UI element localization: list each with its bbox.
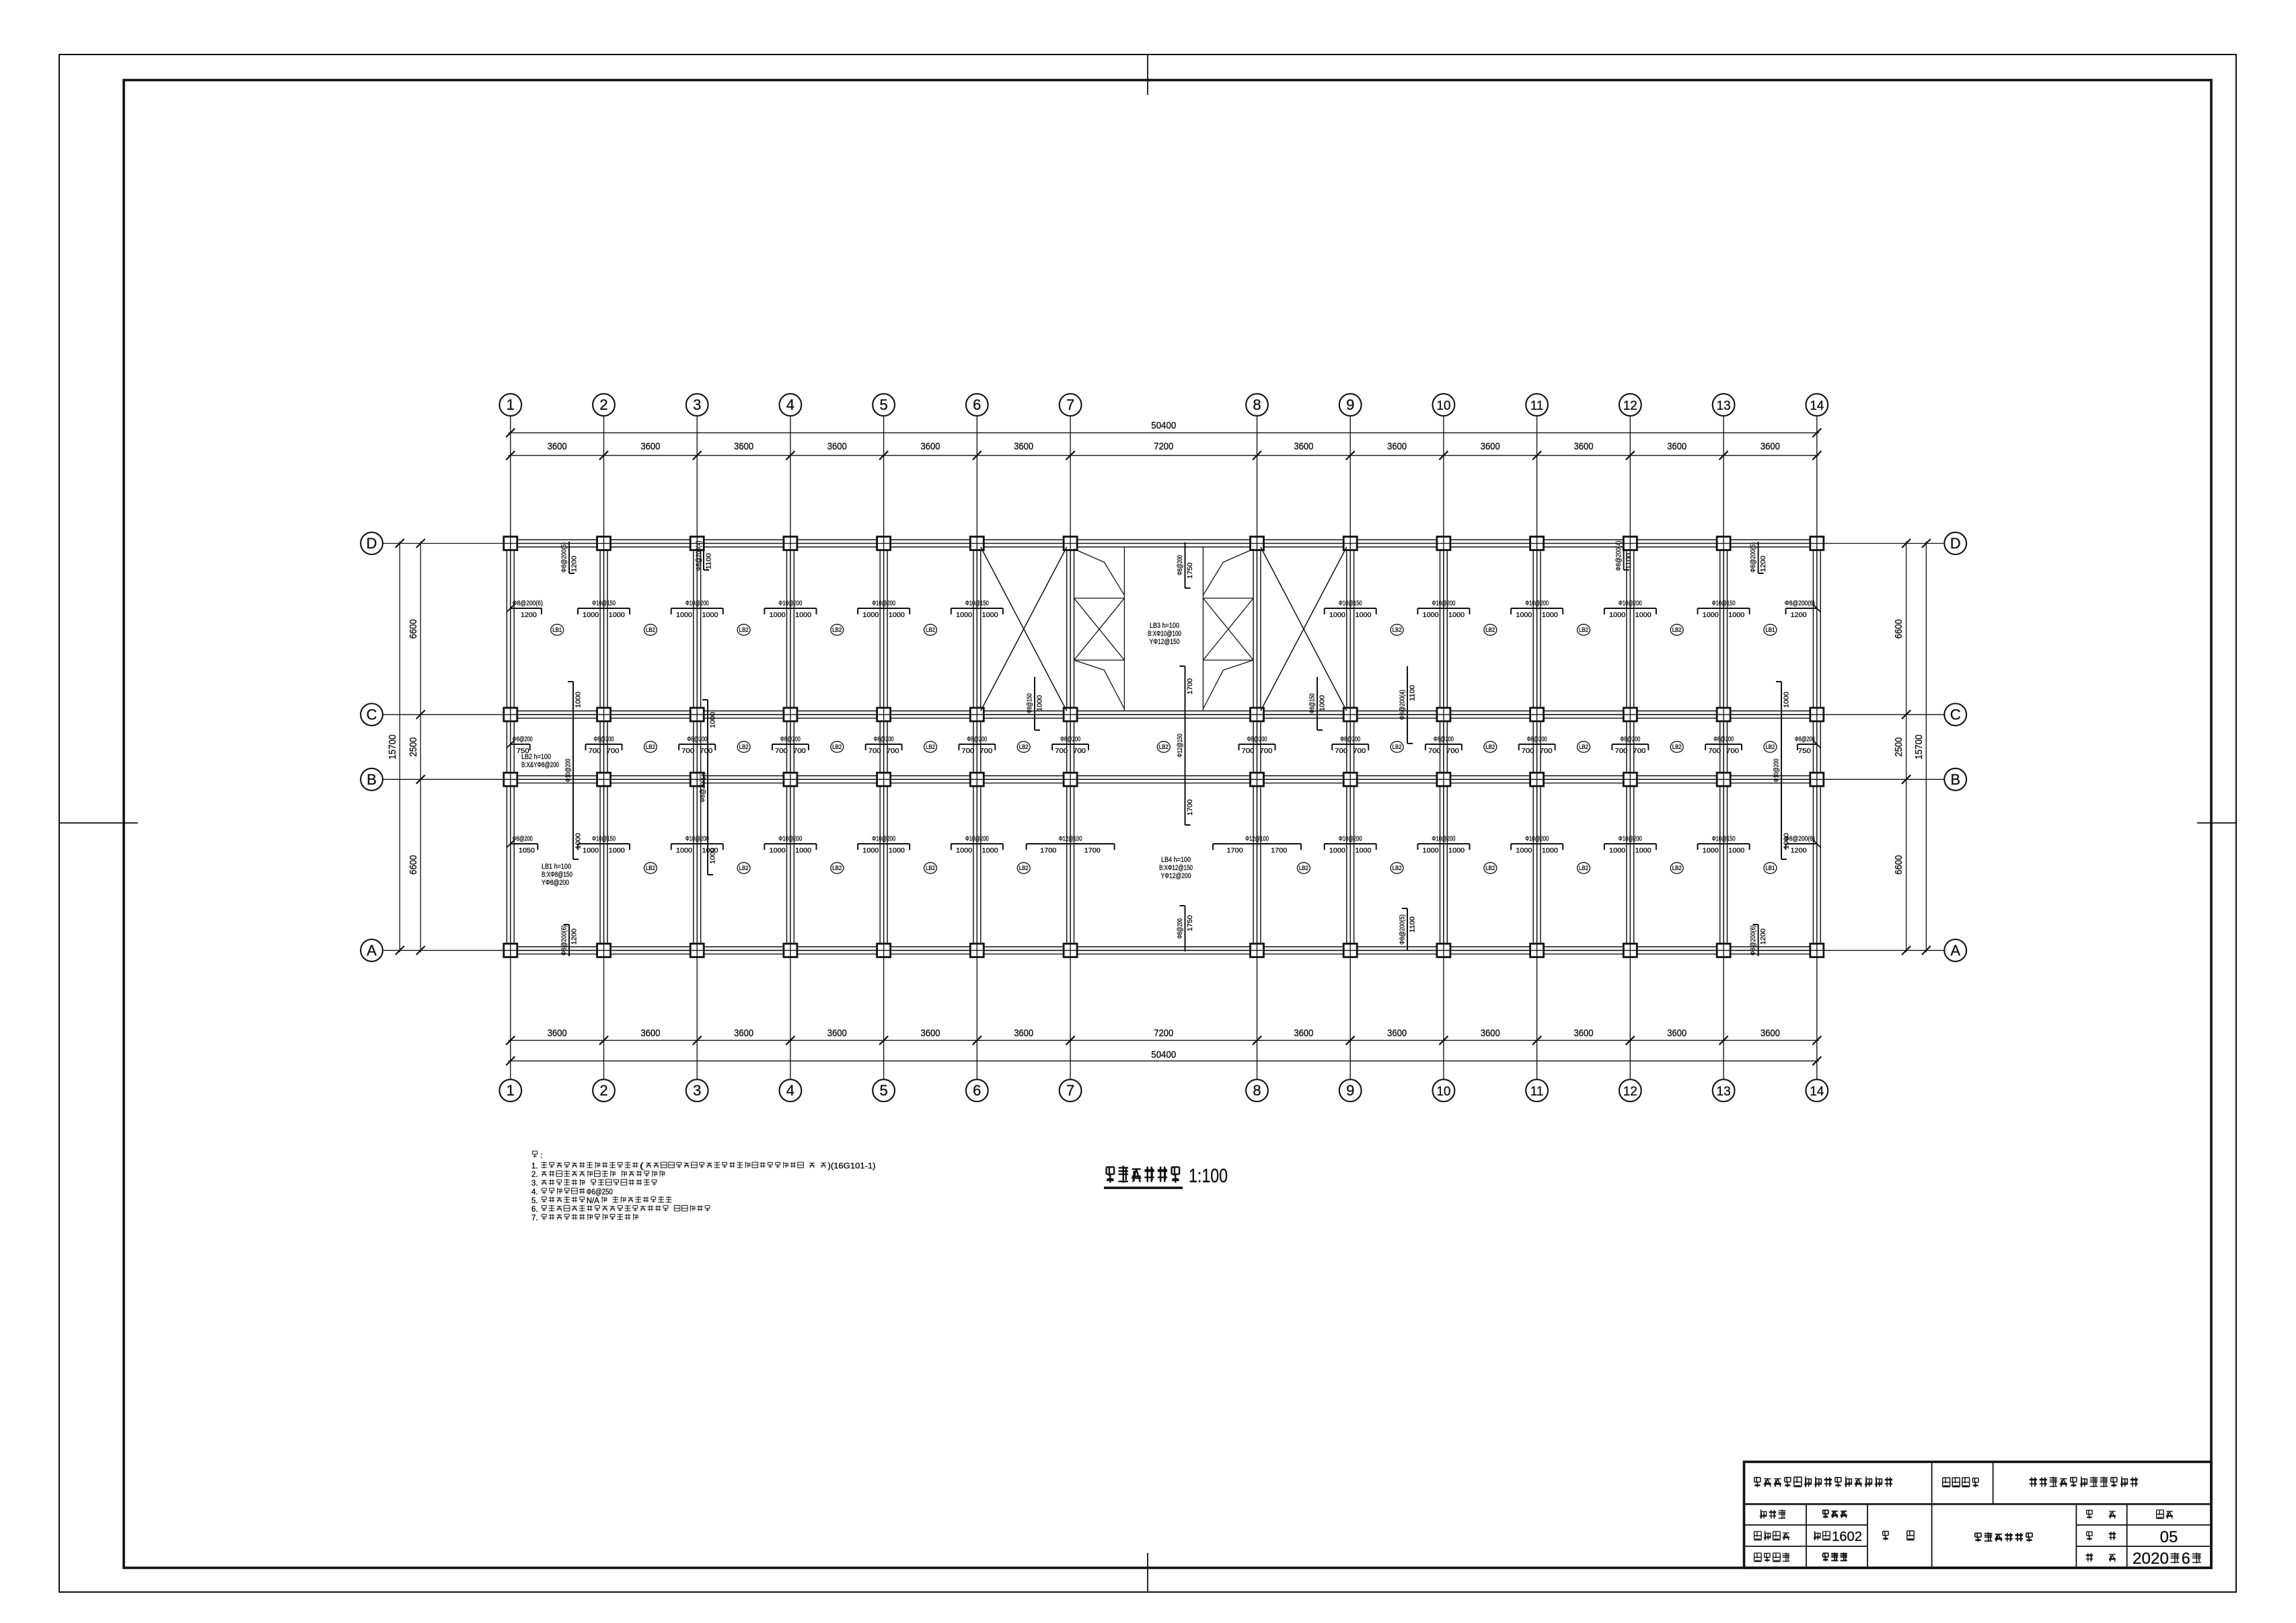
svg-text:3600: 3600 — [1387, 441, 1407, 452]
svg-text:1000: 1000 — [1423, 611, 1439, 619]
svg-text:LB2: LB2 — [1299, 865, 1308, 871]
svg-text:13: 13 — [1717, 399, 1731, 413]
svg-text:700: 700 — [868, 747, 881, 755]
svg-text:LB3 h=100: LB3 h=100 — [1150, 622, 1179, 630]
svg-text:1000: 1000 — [1356, 611, 1372, 619]
svg-text:1000: 1000 — [1783, 692, 1791, 708]
svg-text:1000: 1000 — [709, 712, 717, 728]
svg-text:11: 11 — [1530, 1085, 1544, 1099]
svg-text:YΦ12@150: YΦ12@150 — [1150, 638, 1180, 646]
svg-text:Φ8@200: Φ8@200 — [1620, 735, 1640, 744]
svg-text:1000: 1000 — [609, 611, 625, 619]
svg-text:Φ12@100: Φ12@100 — [1245, 835, 1269, 843]
svg-text:700: 700 — [1708, 747, 1721, 755]
svg-text:3: 3 — [693, 1082, 701, 1099]
svg-text:3600: 3600 — [1387, 1028, 1407, 1039]
svg-text:1000: 1000 — [676, 611, 692, 619]
svg-text:LB2: LB2 — [646, 626, 655, 633]
svg-text:12: 12 — [1623, 399, 1637, 413]
svg-text:3600: 3600 — [1294, 441, 1313, 452]
svg-text:1000: 1000 — [609, 846, 625, 855]
svg-text:Φ8@200: Φ8@200 — [1713, 735, 1734, 744]
svg-text:Φ10@200: Φ10@200 — [1432, 835, 1455, 843]
svg-text:Φ8@200(5): Φ8@200(5) — [1399, 914, 1407, 945]
svg-text:Φ10@200: Φ10@200 — [1525, 835, 1549, 843]
svg-text:Φ8@200: Φ8@200 — [594, 735, 614, 744]
svg-text:1000: 1000 — [702, 611, 718, 619]
svg-text:LB2: LB2 — [1672, 865, 1682, 871]
svg-text:1200: 1200 — [1791, 846, 1807, 855]
svg-text:1700: 1700 — [1040, 846, 1056, 855]
svg-text:B: B — [367, 771, 377, 788]
svg-text:1000: 1000 — [889, 611, 905, 619]
svg-text:Φ10@200: Φ10@200 — [686, 600, 709, 608]
svg-text:)(16G101-1): )(16G101-1) — [828, 1162, 876, 1170]
svg-text:D: D — [1950, 535, 1961, 552]
svg-text:1000: 1000 — [982, 611, 998, 619]
svg-text:700: 700 — [1615, 747, 1627, 755]
svg-text:7200: 7200 — [1154, 1028, 1173, 1039]
svg-text:C: C — [1950, 707, 1961, 723]
svg-text:1200: 1200 — [1759, 556, 1767, 572]
svg-text:Φ8@200: Φ8@200 — [687, 735, 707, 744]
svg-text:8: 8 — [1253, 1082, 1261, 1099]
svg-text:Φ10@200: Φ10@200 — [1432, 600, 1455, 608]
svg-text:700: 700 — [793, 747, 806, 755]
svg-text:Φ8@200: Φ8@200 — [874, 735, 894, 744]
svg-text:A: A — [1950, 942, 1960, 959]
svg-text:700: 700 — [1522, 747, 1534, 755]
svg-text:Φ8@200(6): Φ8@200(6) — [1785, 600, 1815, 608]
svg-text:2: 2 — [599, 1082, 607, 1099]
svg-text:6600: 6600 — [408, 619, 419, 639]
svg-text:1000: 1000 — [709, 848, 717, 864]
svg-text:Φ8@200: Φ8@200 — [1434, 735, 1454, 744]
svg-text:3600: 3600 — [827, 441, 847, 452]
svg-text:1000: 1000 — [1635, 846, 1652, 855]
svg-text:Φ8@200(4): Φ8@200(4) — [1615, 541, 1623, 571]
svg-text:700: 700 — [775, 747, 788, 755]
svg-text:8: 8 — [1253, 396, 1261, 413]
svg-text:LB2: LB2 — [646, 865, 655, 871]
svg-text:1000: 1000 — [770, 611, 786, 619]
svg-text:2.: 2. — [531, 1171, 538, 1179]
svg-text:700: 700 — [1540, 747, 1553, 755]
svg-text:Φ10@200: Φ10@200 — [1773, 758, 1781, 782]
svg-text:3: 3 — [693, 396, 701, 413]
svg-text:700: 700 — [1260, 747, 1273, 755]
svg-text:1000: 1000 — [770, 846, 786, 855]
svg-text:700: 700 — [1073, 747, 1086, 755]
svg-text:1750: 1750 — [1186, 563, 1194, 579]
svg-text:4: 4 — [786, 396, 794, 413]
svg-text:1000: 1000 — [1516, 846, 1532, 855]
svg-text:50400: 50400 — [1151, 1050, 1176, 1060]
svg-text:750: 750 — [1798, 747, 1811, 755]
svg-text:LB2: LB2 — [926, 626, 935, 633]
svg-text:B:XΦ8@150: B:XΦ8@150 — [542, 871, 572, 879]
svg-text:3600: 3600 — [640, 441, 660, 452]
svg-text:D: D — [367, 535, 377, 552]
svg-text:1000: 1000 — [1448, 611, 1465, 619]
svg-text:LB1: LB1 — [1765, 626, 1775, 633]
svg-text:14: 14 — [1810, 1085, 1824, 1099]
svg-text:1000: 1000 — [1728, 611, 1744, 619]
svg-text:LB2: LB2 — [1579, 626, 1588, 633]
svg-text:3600: 3600 — [1761, 1028, 1780, 1039]
svg-text:1000: 1000 — [1356, 846, 1372, 855]
svg-text:Φ8@200: Φ8@200 — [1340, 735, 1360, 744]
svg-text:1: 1 — [507, 396, 515, 413]
svg-text:LB2: LB2 — [1485, 744, 1495, 750]
svg-text:YΦ8@200: YΦ8@200 — [542, 879, 569, 887]
svg-text:3.: 3. — [531, 1180, 538, 1188]
svg-text:1000: 1000 — [1783, 833, 1791, 849]
svg-text:Φ8@200(3): Φ8@200(3) — [699, 772, 707, 803]
svg-text:3600: 3600 — [921, 441, 940, 452]
svg-text:1200: 1200 — [570, 556, 579, 572]
svg-text:LB2: LB2 — [1485, 865, 1495, 871]
svg-text:Φ10@200: Φ10@200 — [1525, 600, 1549, 608]
svg-text:1000: 1000 — [1329, 846, 1345, 855]
svg-text:10: 10 — [1436, 399, 1450, 413]
svg-text:1000: 1000 — [1609, 846, 1625, 855]
svg-text:700: 700 — [700, 747, 712, 755]
svg-text:3600: 3600 — [921, 1028, 940, 1039]
svg-text:LB2: LB2 — [1019, 865, 1029, 871]
svg-text:1000: 1000 — [1703, 846, 1719, 855]
svg-text:LB2: LB2 — [1579, 744, 1588, 750]
svg-text:6600: 6600 — [1894, 619, 1904, 639]
svg-text:LB2: LB2 — [832, 865, 842, 871]
svg-text:15700: 15700 — [387, 735, 398, 760]
svg-text:3600: 3600 — [1667, 1028, 1687, 1039]
svg-text:1100: 1100 — [1409, 916, 1417, 933]
svg-text:1000: 1000 — [583, 846, 599, 855]
svg-text:1000: 1000 — [889, 846, 905, 855]
svg-text:1000: 1000 — [956, 611, 972, 619]
svg-text:LB2: LB2 — [1672, 626, 1682, 633]
svg-text:Φ8@200: Φ8@200 — [513, 835, 533, 843]
svg-text:N/A: N/A — [587, 1197, 599, 1205]
svg-text:3600: 3600 — [1014, 1028, 1033, 1039]
svg-text:4: 4 — [786, 1082, 794, 1099]
svg-text:1000: 1000 — [795, 611, 811, 619]
svg-text:1:100: 1:100 — [1189, 1165, 1228, 1187]
svg-text:1750: 1750 — [1186, 915, 1194, 931]
svg-text:LB2: LB2 — [646, 744, 655, 750]
svg-text:Φ8@200(4): Φ8@200(4) — [1399, 690, 1407, 720]
svg-text:2: 2 — [599, 396, 607, 413]
svg-text:Φ8@200: Φ8@200 — [1176, 555, 1184, 575]
svg-text:2020: 2020 — [2133, 1550, 2169, 1568]
svg-text:Φ8@200(6): Φ8@200(6) — [560, 925, 568, 955]
svg-text:Φ8@200: Φ8@200 — [780, 735, 801, 744]
svg-text:LB1 h=100: LB1 h=100 — [542, 863, 571, 871]
svg-text:Φ8@200(5): Φ8@200(5) — [560, 542, 568, 573]
svg-text:1000: 1000 — [1542, 846, 1558, 855]
svg-text:Φ8@200: Φ8@200 — [1060, 735, 1080, 744]
svg-text:700: 700 — [1353, 747, 1366, 755]
svg-text:700: 700 — [1335, 747, 1347, 755]
svg-text:1000: 1000 — [1516, 611, 1532, 619]
svg-text:05: 05 — [2160, 1528, 2178, 1546]
svg-text:Φ8@200(5): Φ8@200(5) — [1749, 542, 1757, 573]
svg-text:1000: 1000 — [862, 846, 879, 855]
svg-text:Φ10@200: Φ10@200 — [686, 835, 709, 843]
svg-text:1000: 1000 — [1542, 611, 1558, 619]
svg-text:12: 12 — [1623, 1085, 1637, 1099]
svg-text:1200: 1200 — [521, 611, 537, 619]
svg-text:1000: 1000 — [1448, 846, 1465, 855]
svg-text:B:XΦ12@150: B:XΦ12@150 — [1159, 864, 1193, 872]
svg-text:Φ10@200: Φ10@200 — [1619, 600, 1642, 608]
svg-text:1000: 1000 — [862, 611, 879, 619]
svg-text:700: 700 — [961, 747, 974, 755]
svg-text:LB2: LB2 — [926, 744, 935, 750]
svg-text:700: 700 — [1446, 747, 1459, 755]
svg-text:LB2: LB2 — [1159, 744, 1169, 750]
svg-text:1000: 1000 — [583, 611, 599, 619]
svg-text:LB2: LB2 — [832, 744, 842, 750]
svg-text:B:X&YΦ8@200: B:X&YΦ8@200 — [521, 761, 559, 769]
svg-text:3600: 3600 — [640, 1028, 660, 1039]
svg-text:Φ8@200(6): Φ8@200(6) — [1749, 925, 1757, 955]
svg-text:6: 6 — [973, 396, 981, 413]
svg-text:1100: 1100 — [1625, 553, 1633, 569]
svg-text:3600: 3600 — [1761, 441, 1780, 452]
svg-text:LB2: LB2 — [1393, 744, 1402, 750]
svg-text:700: 700 — [887, 747, 899, 755]
svg-text:(: ( — [640, 1162, 644, 1170]
svg-text:700: 700 — [1055, 747, 1068, 755]
svg-text:3600: 3600 — [1481, 441, 1500, 452]
svg-text:1700: 1700 — [1186, 799, 1194, 816]
svg-text:1000: 1000 — [1423, 846, 1439, 855]
svg-text:1000: 1000 — [956, 846, 972, 855]
svg-text:Φ12@150: Φ12@150 — [1176, 733, 1184, 757]
svg-text:LB2: LB2 — [739, 626, 749, 633]
svg-text:6.: 6. — [531, 1206, 538, 1214]
svg-text:Φ8@200: Φ8@200 — [1247, 735, 1267, 744]
svg-text:Φ8@200: Φ8@200 — [1527, 735, 1547, 744]
svg-text:1000: 1000 — [1703, 611, 1719, 619]
svg-text:1000: 1000 — [575, 833, 583, 849]
svg-text:1050: 1050 — [519, 846, 535, 855]
svg-text:3600: 3600 — [1294, 1028, 1313, 1039]
svg-text:Φ8@150: Φ8@150 — [1308, 693, 1317, 713]
svg-text:1100: 1100 — [705, 553, 713, 569]
svg-text:9: 9 — [1346, 1082, 1354, 1099]
svg-text:Φ6@250: Φ6@250 — [587, 1188, 613, 1196]
svg-text:Φ10@200: Φ10@200 — [1339, 835, 1362, 843]
svg-text:LB2: LB2 — [1672, 744, 1682, 750]
svg-text:LB2: LB2 — [739, 865, 749, 871]
svg-text:LB2: LB2 — [1393, 865, 1402, 871]
svg-text:Φ10@200: Φ10@200 — [965, 835, 989, 843]
svg-text:Φ10@200: Φ10@200 — [1619, 835, 1642, 843]
svg-text:3600: 3600 — [734, 441, 753, 452]
svg-text:C: C — [367, 707, 377, 723]
svg-text:1000: 1000 — [1728, 846, 1744, 855]
svg-text:1700: 1700 — [1084, 846, 1101, 855]
svg-text:1000: 1000 — [982, 846, 998, 855]
svg-text:700: 700 — [607, 747, 620, 755]
svg-text:LB4 h=100: LB4 h=100 — [1161, 856, 1191, 864]
svg-text:7: 7 — [1066, 396, 1074, 413]
svg-text:1700: 1700 — [1271, 846, 1287, 855]
svg-text:4.: 4. — [531, 1188, 538, 1196]
svg-text:700: 700 — [1242, 747, 1255, 755]
svg-text:700: 700 — [1633, 747, 1645, 755]
svg-text:1200: 1200 — [1759, 929, 1767, 945]
svg-text:3600: 3600 — [1667, 441, 1687, 452]
svg-text:Φ10@150: Φ10@150 — [1712, 835, 1736, 843]
svg-text:B:XΦ10@100: B:XΦ10@100 — [1148, 630, 1181, 638]
svg-text:1000: 1000 — [1036, 695, 1044, 711]
svg-text:Φ10@200: Φ10@200 — [778, 835, 802, 843]
svg-text:LB1: LB1 — [1765, 865, 1775, 871]
svg-text:1602: 1602 — [1832, 1529, 1862, 1544]
svg-text:3600: 3600 — [1574, 441, 1594, 452]
svg-text:LB2: LB2 — [832, 626, 842, 633]
svg-text:3600: 3600 — [548, 441, 567, 452]
svg-text:Φ8@200(6): Φ8@200(6) — [513, 600, 543, 608]
svg-text:LB2: LB2 — [1579, 865, 1588, 871]
svg-text:3600: 3600 — [734, 1028, 753, 1039]
svg-text:7200: 7200 — [1154, 441, 1173, 452]
svg-text:Φ10@150: Φ10@150 — [592, 835, 616, 843]
svg-text:Φ10@200: Φ10@200 — [872, 835, 895, 843]
svg-text:Φ12@100: Φ12@100 — [1059, 835, 1082, 843]
svg-text:14: 14 — [1810, 399, 1824, 413]
svg-text:LB2: LB2 — [926, 865, 935, 871]
svg-text:LB2: LB2 — [1765, 744, 1775, 750]
svg-text:750: 750 — [517, 747, 529, 755]
svg-text:5: 5 — [879, 1082, 887, 1099]
svg-text:LB1: LB1 — [552, 626, 562, 633]
svg-text:Φ8@150: Φ8@150 — [1026, 693, 1034, 713]
svg-text:Φ8@200: Φ8@200 — [967, 735, 987, 744]
svg-text:1: 1 — [507, 1082, 515, 1099]
svg-text:3600: 3600 — [1574, 1028, 1594, 1039]
svg-text:Φ8@200(4): Φ8@200(4) — [695, 541, 703, 571]
svg-text:YΦ12@200: YΦ12@200 — [1161, 872, 1191, 880]
svg-text:5: 5 — [879, 396, 887, 413]
svg-text:1200: 1200 — [570, 929, 579, 945]
svg-text:1700: 1700 — [1186, 678, 1194, 694]
svg-text:Φ8@200: Φ8@200 — [1176, 918, 1184, 939]
svg-text:9: 9 — [1346, 396, 1354, 413]
svg-text:10: 10 — [1436, 1085, 1450, 1099]
svg-text:LB2: LB2 — [1485, 626, 1495, 633]
svg-text::: : — [540, 1151, 542, 1160]
svg-text:1700: 1700 — [1227, 846, 1243, 855]
svg-text:3600: 3600 — [827, 1028, 847, 1039]
svg-text:3600: 3600 — [548, 1028, 567, 1039]
svg-text:11: 11 — [1530, 399, 1544, 413]
svg-text:Φ8@200: Φ8@200 — [513, 735, 533, 744]
svg-text:700: 700 — [589, 747, 601, 755]
svg-text:1000: 1000 — [1329, 611, 1345, 619]
svg-text:Φ8@200: Φ8@200 — [1795, 735, 1815, 744]
svg-text:1000: 1000 — [1319, 695, 1327, 711]
svg-text:LB2: LB2 — [1393, 626, 1402, 633]
svg-text:LB2: LB2 — [1019, 744, 1029, 750]
svg-text:Φ10@200: Φ10@200 — [778, 600, 802, 608]
svg-text:1000: 1000 — [1609, 611, 1625, 619]
svg-text:Φ10@150: Φ10@150 — [1712, 600, 1736, 608]
svg-text:1000: 1000 — [1635, 611, 1652, 619]
svg-text:1000: 1000 — [575, 692, 583, 708]
svg-text:6600: 6600 — [408, 855, 419, 875]
svg-text:Φ10@150: Φ10@150 — [1339, 600, 1362, 608]
svg-text:700: 700 — [979, 747, 992, 755]
svg-text:6: 6 — [973, 1082, 981, 1099]
svg-text:6: 6 — [2182, 1550, 2190, 1568]
svg-text:Φ10@200: Φ10@200 — [564, 758, 572, 782]
svg-text:7.: 7. — [531, 1215, 538, 1223]
svg-text:1200: 1200 — [1791, 611, 1807, 619]
svg-text:Φ10@200: Φ10@200 — [872, 600, 895, 608]
svg-text:50400: 50400 — [1151, 421, 1176, 431]
svg-text:15700: 15700 — [1914, 735, 1925, 760]
svg-text:A: A — [367, 942, 377, 959]
svg-text:1000: 1000 — [795, 846, 811, 855]
svg-text:6600: 6600 — [1894, 855, 1904, 875]
svg-text:Φ10@150: Φ10@150 — [592, 600, 616, 608]
svg-text:2500: 2500 — [408, 737, 419, 757]
svg-text:Φ10@150: Φ10@150 — [965, 600, 989, 608]
svg-text:2500: 2500 — [1894, 737, 1904, 757]
svg-text:700: 700 — [1428, 747, 1441, 755]
svg-text:5.: 5. — [531, 1197, 538, 1205]
svg-text:3600: 3600 — [1014, 441, 1033, 452]
svg-text:7: 7 — [1066, 1082, 1074, 1099]
svg-text:1.: 1. — [531, 1162, 538, 1170]
svg-text:1100: 1100 — [1409, 685, 1417, 701]
svg-text:LB2: LB2 — [739, 744, 749, 750]
svg-text:1000: 1000 — [676, 846, 692, 855]
svg-text:B: B — [1950, 771, 1960, 788]
svg-text:13: 13 — [1717, 1085, 1731, 1099]
svg-text:3600: 3600 — [1481, 1028, 1500, 1039]
svg-text:700: 700 — [1726, 747, 1739, 755]
svg-text:700: 700 — [681, 747, 694, 755]
